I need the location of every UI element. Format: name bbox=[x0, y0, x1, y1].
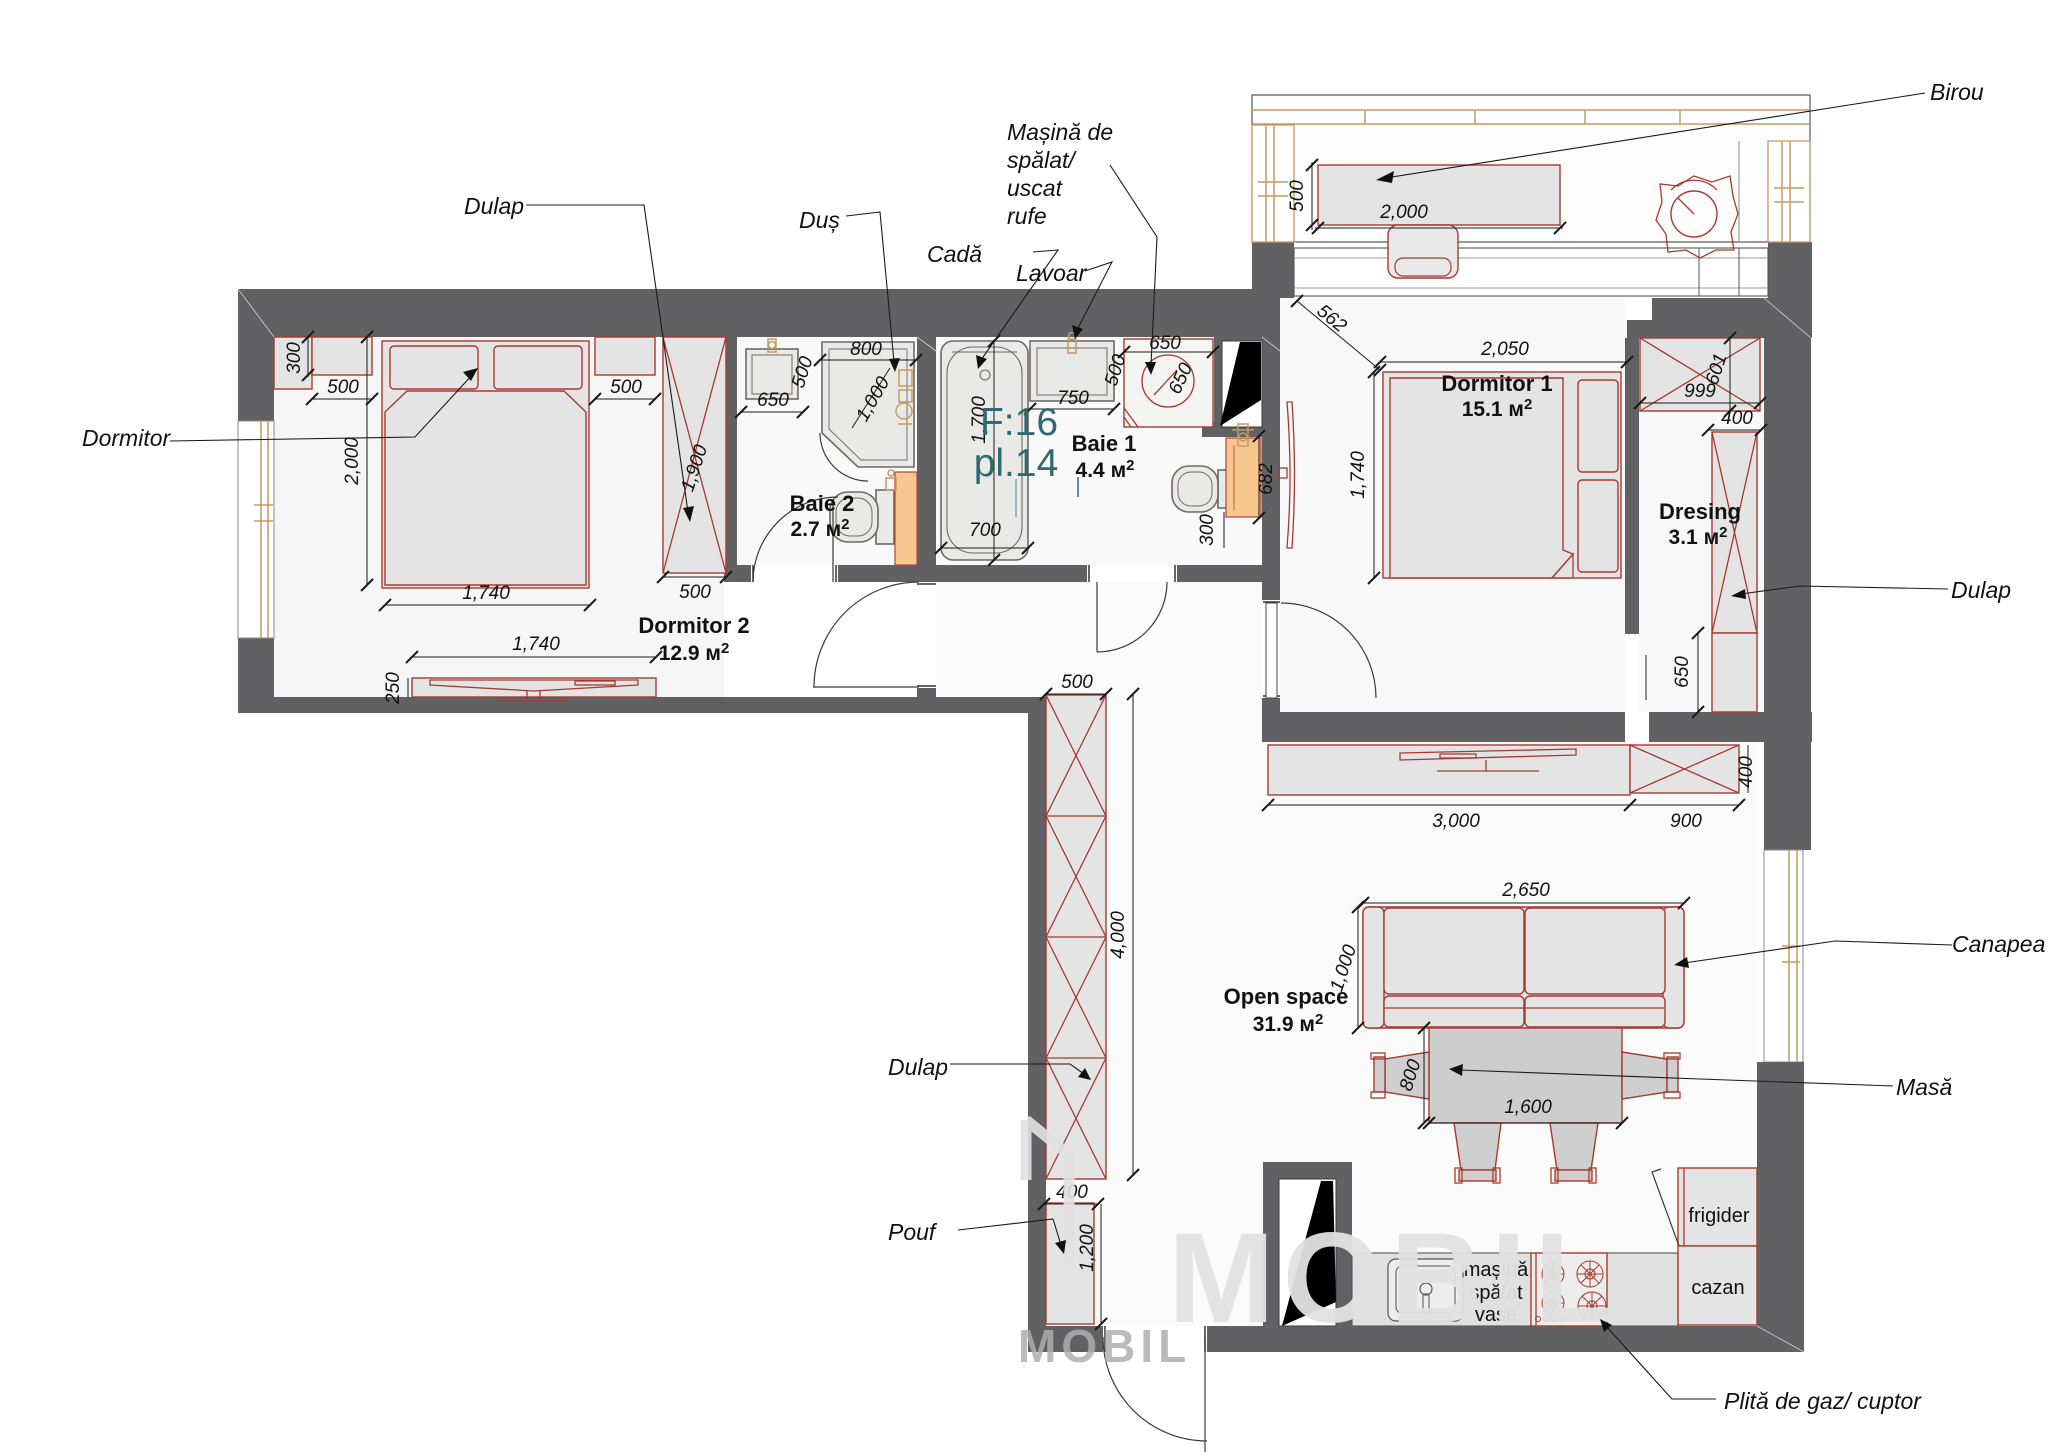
svg-text:Dormitor 1: Dormitor 1 bbox=[1441, 371, 1552, 396]
svg-text:700: 700 bbox=[969, 520, 1001, 541]
svg-text:2,050: 2,050 bbox=[1480, 339, 1529, 360]
svg-text:rufe: rufe bbox=[1007, 203, 1047, 229]
svg-text:750: 750 bbox=[1057, 388, 1089, 409]
svg-text:frigider: frigider bbox=[1688, 1205, 1749, 1227]
svg-text:1,740: 1,740 bbox=[462, 583, 510, 604]
svg-text:2.7 м2: 2.7 м2 bbox=[791, 516, 850, 541]
svg-text:2,000: 2,000 bbox=[1379, 202, 1428, 223]
svg-text:Dresing: Dresing bbox=[1659, 499, 1741, 524]
svg-text:3,000: 3,000 bbox=[1432, 811, 1480, 832]
svg-text:Dulap: Dulap bbox=[1951, 577, 2011, 603]
svg-text:Birou: Birou bbox=[1930, 79, 1984, 105]
svg-text:Masă: Masă bbox=[1896, 1074, 1952, 1100]
svg-text:500: 500 bbox=[327, 377, 359, 398]
svg-text:500: 500 bbox=[610, 377, 642, 398]
svg-text:300: 300 bbox=[1197, 514, 1218, 546]
svg-text:pl.14: pl.14 bbox=[974, 442, 1059, 485]
svg-text:Dulap: Dulap bbox=[464, 193, 524, 219]
svg-text:F:16: F:16 bbox=[980, 401, 1058, 444]
svg-text:400: 400 bbox=[1721, 408, 1753, 429]
svg-text:1,740: 1,740 bbox=[1348, 451, 1369, 499]
svg-text:300: 300 bbox=[284, 342, 305, 374]
svg-text:Dormitor 2: Dormitor 2 bbox=[638, 613, 749, 638]
svg-text:Open space: Open space bbox=[1224, 984, 1349, 1009]
svg-text:500: 500 bbox=[1061, 672, 1093, 693]
svg-text:400: 400 bbox=[1736, 756, 1757, 788]
svg-text:650: 650 bbox=[757, 390, 789, 411]
svg-text:500: 500 bbox=[679, 582, 711, 603]
svg-text:1,740: 1,740 bbox=[512, 634, 560, 655]
svg-text:Cadă: Cadă bbox=[927, 241, 982, 267]
svg-text:3.1 м2: 3.1 м2 bbox=[1669, 524, 1728, 549]
svg-text:Duș: Duș bbox=[799, 207, 840, 233]
svg-text:4.4 м2: 4.4 м2 bbox=[1076, 457, 1135, 482]
svg-text:uscat: uscat bbox=[1007, 175, 1064, 201]
svg-text:Dormitor: Dormitor bbox=[82, 425, 172, 451]
svg-text:spălat/: spălat/ bbox=[1007, 147, 1077, 173]
svg-text:Plită de gaz/ cuptor: Plită de gaz/ cuptor bbox=[1724, 1388, 1922, 1414]
svg-text:Baie 1: Baie 1 bbox=[1072, 431, 1137, 456]
svg-text:cazan: cazan bbox=[1691, 1277, 1744, 1299]
svg-text:250: 250 bbox=[383, 672, 404, 705]
svg-text:4,000: 4,000 bbox=[1108, 911, 1129, 959]
svg-text:1,200: 1,200 bbox=[1077, 1224, 1098, 1272]
svg-text:Lavoar: Lavoar bbox=[1016, 260, 1088, 286]
svg-text:MOBIL: MOBIL bbox=[1018, 1320, 1191, 1372]
svg-text:Baie 2: Baie 2 bbox=[790, 491, 855, 516]
svg-text:Pouf: Pouf bbox=[888, 1219, 938, 1245]
svg-text:800: 800 bbox=[850, 339, 882, 360]
svg-text:MOBIL: MOBIL bbox=[1168, 1207, 1620, 1350]
svg-text:682: 682 bbox=[1256, 463, 1277, 495]
svg-text:500: 500 bbox=[1287, 180, 1308, 212]
svg-text:650: 650 bbox=[1672, 656, 1693, 688]
svg-text:12.9 м2: 12.9 м2 bbox=[659, 640, 730, 665]
svg-text:31.9 м2: 31.9 м2 bbox=[1253, 1011, 1324, 1036]
svg-text:15.1 м2: 15.1 м2 bbox=[1462, 396, 1533, 421]
svg-text:650: 650 bbox=[1149, 333, 1181, 354]
svg-text:Dulap: Dulap bbox=[888, 1054, 948, 1080]
svg-text:Canapea: Canapea bbox=[1952, 931, 2045, 957]
svg-text:2,650: 2,650 bbox=[1501, 880, 1550, 901]
svg-text:1,600: 1,600 bbox=[1504, 1097, 1552, 1118]
svg-text:2,000: 2,000 bbox=[342, 437, 363, 486]
svg-text:Mașină de: Mașină de bbox=[1007, 119, 1113, 145]
svg-text:900: 900 bbox=[1670, 811, 1702, 832]
